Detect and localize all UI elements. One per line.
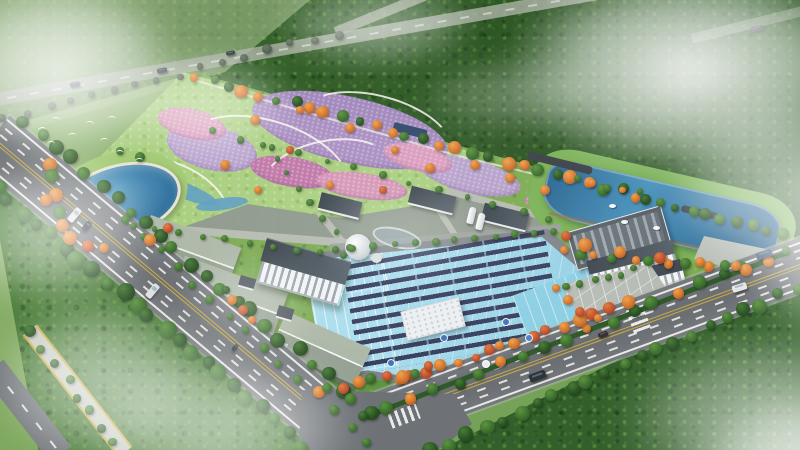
vehicle-windshield (86, 222, 90, 226)
tree (311, 37, 319, 45)
tree (45, 226, 58, 239)
tree-layer (0, 0, 800, 450)
road-west-arterial (0, 116, 377, 450)
accent-tree (424, 361, 433, 370)
tree (379, 401, 393, 415)
accent-tree (631, 193, 640, 202)
tree (545, 389, 557, 401)
tree (719, 268, 730, 279)
tree (597, 184, 608, 195)
vehicle-car (225, 50, 235, 56)
tree (538, 341, 551, 354)
vehicle-bus (66, 207, 82, 224)
tree (237, 390, 252, 405)
umbrella (502, 318, 510, 326)
tree (175, 229, 182, 236)
plant-house (317, 192, 362, 220)
tree (531, 164, 544, 177)
tree (322, 383, 332, 393)
tree (348, 423, 357, 432)
vehicle-layer (0, 0, 800, 450)
tree (158, 246, 165, 253)
accent-tree (495, 356, 506, 367)
tree (292, 96, 303, 107)
tree (211, 75, 220, 84)
tree (618, 272, 624, 278)
tree (36, 345, 45, 354)
boat (621, 220, 628, 224)
vehicle-bus (755, 248, 772, 259)
solar-pergola (392, 122, 427, 139)
tree (184, 258, 199, 273)
accent-tree (391, 146, 399, 154)
tree (293, 247, 300, 254)
accent-tree (304, 102, 315, 113)
pad-lane-cross (260, 137, 353, 253)
tree (306, 199, 314, 207)
service-road (23, 324, 133, 450)
garden-path-arc (112, 142, 243, 252)
tree (731, 216, 743, 228)
pond-meadow-ring (38, 136, 198, 260)
accent-tree (448, 141, 461, 154)
mist-blob (380, 40, 640, 150)
tree (545, 216, 552, 223)
mist-blob (640, 370, 800, 450)
tree (121, 215, 130, 224)
accent-tree (326, 181, 334, 189)
equipment-machinery-rows (573, 211, 666, 264)
boat (609, 204, 616, 208)
tree (269, 413, 280, 424)
tree (365, 373, 376, 384)
internal-road-basin-south (350, 297, 633, 387)
accent-tree (519, 160, 530, 171)
tree (17, 207, 32, 222)
flower-bed (415, 147, 524, 205)
office-building (254, 238, 351, 306)
tree (219, 59, 226, 66)
vehicle-bus (751, 24, 764, 31)
tree (640, 194, 651, 205)
tree (412, 239, 419, 246)
tree (752, 299, 767, 314)
tree (435, 186, 443, 194)
corner-garden (0, 0, 800, 450)
basin-channel-lines (0, 0, 800, 450)
tree (550, 228, 557, 235)
tree (209, 127, 216, 134)
pad-lane-south (129, 222, 540, 262)
tree (531, 230, 538, 237)
equipment-hall (566, 205, 671, 270)
accent-tree (163, 223, 173, 233)
accent-tree (144, 234, 156, 246)
tree (45, 169, 59, 183)
accent-tree (695, 257, 705, 267)
basin-east-channel (512, 263, 617, 337)
stream-pool (431, 347, 505, 380)
tree (336, 384, 352, 400)
accent-tree (434, 141, 444, 151)
tree (777, 228, 789, 240)
flower-garden (0, 0, 800, 450)
tree (782, 246, 791, 255)
covered-shed (168, 256, 288, 341)
tree (337, 110, 349, 122)
flower-bed (162, 116, 262, 180)
tree (465, 194, 470, 199)
basin-clear-pools-left (311, 286, 398, 378)
solar-panel-field (342, 230, 563, 374)
tree (605, 274, 612, 281)
tree (340, 252, 347, 259)
tree (130, 297, 147, 314)
tree (603, 184, 611, 192)
pad-lane-cross-2 (417, 178, 475, 263)
internal-road-west (118, 211, 375, 447)
silo (475, 212, 486, 230)
tree (262, 44, 272, 54)
tree (722, 312, 733, 323)
tree (73, 394, 81, 402)
boat (653, 226, 660, 230)
tree (693, 275, 707, 289)
zebra-crossing (625, 303, 651, 334)
accent-tree (740, 264, 752, 276)
tree (335, 31, 344, 40)
tree (108, 438, 117, 447)
accent-tree (234, 85, 248, 99)
flower-bed (381, 137, 455, 179)
tree (210, 364, 226, 380)
tree (153, 77, 160, 84)
forest-left-strip (0, 0, 800, 450)
tree (247, 240, 253, 246)
mist-blob (550, 290, 800, 450)
tree (560, 334, 573, 347)
bird (38, 126, 47, 133)
accent-tree (396, 370, 409, 383)
accent-tree (559, 322, 570, 333)
accent-tree (495, 341, 504, 350)
stream-garden-band (361, 276, 659, 415)
road-front-arterial (331, 237, 800, 450)
tree (294, 441, 308, 450)
basin-clear-pools-top (319, 253, 389, 302)
tree (286, 39, 293, 46)
tree (350, 163, 358, 171)
tree (643, 256, 654, 267)
mist-blob (0, 260, 250, 450)
mist-blob (80, 30, 330, 180)
tree (270, 333, 285, 348)
tree (317, 249, 323, 255)
tree (422, 442, 437, 450)
road-junction (0, 0, 800, 450)
vehicle-bus (144, 283, 160, 300)
vehicle-car (81, 220, 92, 232)
mist-blob (140, 235, 350, 385)
tree (458, 426, 473, 441)
admin-building (586, 240, 680, 294)
accent-tree (254, 186, 262, 194)
tree (656, 198, 665, 207)
accent-tree (434, 359, 446, 371)
vehicle-windshield (734, 284, 744, 288)
accent-tree (484, 344, 495, 355)
mist-wash-top-left (0, 0, 800, 450)
plant-house (407, 186, 456, 216)
tree (83, 261, 100, 278)
lake-plaza (0, 0, 800, 450)
tree (399, 132, 408, 141)
tree (364, 406, 379, 421)
mini-hut (273, 340, 288, 352)
accent-tree (56, 219, 69, 232)
vehicle-windshield (599, 331, 605, 334)
tree (576, 280, 583, 287)
tree (455, 378, 466, 389)
tree (38, 129, 50, 141)
tree (233, 296, 244, 307)
tree (736, 302, 750, 316)
tree (418, 133, 429, 144)
accent-tree (703, 261, 714, 272)
accent-tree (404, 370, 415, 381)
tree (269, 144, 275, 150)
vehicle-windshield (758, 250, 768, 255)
accent-tree (614, 246, 626, 258)
bird (86, 120, 95, 127)
admin-plaza (0, 0, 800, 450)
tree (714, 214, 725, 225)
accent-tree (190, 73, 198, 81)
east-lake (539, 157, 786, 268)
basin-junction-well (490, 377, 508, 395)
accent-tree (540, 325, 550, 335)
accent-tree (82, 240, 94, 252)
bird (135, 158, 143, 165)
tree (637, 350, 648, 361)
tree (85, 405, 95, 415)
vehicle-car (597, 330, 608, 338)
accent-tree (40, 194, 52, 206)
tree (471, 235, 478, 242)
accent-tree (508, 338, 520, 350)
tree (112, 191, 125, 204)
bird (52, 117, 61, 124)
tree (473, 369, 484, 380)
tree (307, 360, 317, 370)
vehicle-truck (731, 281, 747, 292)
tree (334, 229, 339, 234)
tree (24, 110, 32, 118)
pad-lane-top (211, 124, 555, 222)
tree (379, 171, 387, 179)
accent-tree (582, 324, 591, 333)
accent-tree (632, 256, 641, 265)
tree (369, 242, 377, 250)
forest-top (0, 0, 800, 450)
tree (241, 301, 257, 317)
accent-tree (250, 115, 260, 125)
tree (0, 180, 7, 193)
tree (284, 426, 297, 439)
accent-tree (316, 106, 328, 118)
tree (256, 399, 269, 412)
accent-tree (560, 246, 568, 254)
tree (567, 381, 581, 395)
mist-blob (600, 60, 800, 320)
tree (515, 406, 530, 421)
lakeside-pavilion (681, 205, 720, 220)
accent-tree (528, 331, 540, 343)
tree (644, 296, 658, 310)
tree (227, 313, 233, 319)
garden-path-arc (254, 127, 400, 227)
tree (77, 167, 90, 180)
accent-tree (372, 120, 383, 131)
accent-tree (420, 367, 433, 380)
tree (188, 281, 196, 289)
tree (97, 180, 110, 193)
tree (200, 234, 206, 240)
tree (260, 343, 269, 352)
forest-top-shading (0, 0, 800, 450)
accent-tree (731, 261, 741, 271)
accent-tree (622, 295, 636, 309)
mist-blob (0, 0, 800, 450)
flower-bed (315, 167, 410, 206)
tree (31, 219, 42, 230)
vehicle-truck (70, 81, 81, 88)
accent-tree (664, 259, 674, 269)
accent-tree (395, 376, 404, 385)
accent-tree (563, 170, 577, 184)
tree (518, 351, 528, 361)
accent-tree (594, 314, 602, 322)
aerial-render-scene (0, 0, 800, 450)
stream-pool (547, 305, 611, 335)
vehicle-windshield (753, 26, 761, 29)
vehicle-windshield (531, 372, 542, 378)
bird (100, 138, 109, 145)
accent-tree (338, 383, 349, 394)
admin-wall (591, 254, 679, 294)
tree (0, 114, 6, 122)
basin-water (0, 0, 800, 450)
stream-pool (591, 291, 635, 320)
flower-bed (245, 75, 455, 184)
tree (392, 241, 399, 248)
vehicle-truck (157, 67, 168, 74)
tree (620, 359, 630, 369)
flower-bed (522, 189, 597, 228)
mist-blob (430, 0, 800, 220)
internal-road-basin-north (330, 224, 561, 252)
tree (406, 181, 411, 186)
tree (432, 238, 440, 246)
accent-tree (296, 106, 304, 114)
tree (213, 283, 226, 296)
rim-footpath (191, 78, 468, 159)
back-road-branch (334, 0, 427, 37)
tree (358, 411, 368, 421)
tree (295, 149, 302, 156)
vehicle-windshield (227, 51, 233, 53)
tree (49, 140, 64, 155)
tree (102, 278, 113, 289)
admin-wing (647, 259, 693, 320)
covered-shed (269, 311, 371, 389)
accent-tree (578, 238, 592, 252)
tree (346, 244, 353, 251)
tree (592, 276, 599, 283)
tree (24, 325, 36, 337)
tree (629, 305, 641, 317)
bird (47, 141, 55, 147)
accent-tree (552, 284, 560, 292)
entrance-gate (242, 334, 249, 346)
vehicle-windshield (73, 210, 79, 216)
tree (240, 54, 249, 63)
tree (793, 284, 800, 295)
bird (116, 150, 124, 157)
mini-house (238, 275, 257, 291)
tree (607, 254, 616, 263)
stream-pool (385, 363, 448, 402)
tree (272, 97, 280, 105)
accent-tree (470, 160, 480, 170)
accent-tree (763, 256, 774, 267)
tree (48, 102, 56, 110)
accent-tree (563, 295, 573, 305)
tree (329, 405, 338, 414)
mist-blob (290, 170, 520, 300)
accent-tree (220, 160, 230, 170)
tree (348, 245, 355, 252)
site-lawn (0, 0, 800, 450)
tree (649, 342, 662, 355)
back-road-right (691, 2, 800, 43)
tree (197, 63, 204, 70)
tree (63, 149, 78, 164)
tree (177, 74, 183, 80)
tree (165, 241, 177, 253)
office-roof (260, 238, 351, 285)
tree (466, 147, 479, 160)
accent-tree (345, 123, 355, 133)
tree (111, 86, 119, 94)
tree (736, 261, 747, 272)
accent-tree (585, 308, 598, 321)
garden-stream (195, 194, 248, 213)
tree (53, 206, 66, 219)
tree (772, 288, 783, 299)
tree (140, 233, 147, 240)
tree (562, 283, 569, 290)
accent-tree (382, 371, 392, 381)
accent-tree (573, 313, 587, 327)
accent-tree (238, 305, 248, 315)
mist-blob (230, 0, 520, 90)
tree (761, 226, 771, 236)
tree (242, 326, 249, 333)
accent-tree (388, 128, 398, 138)
tree (325, 159, 330, 164)
solar-carport (240, 317, 262, 337)
